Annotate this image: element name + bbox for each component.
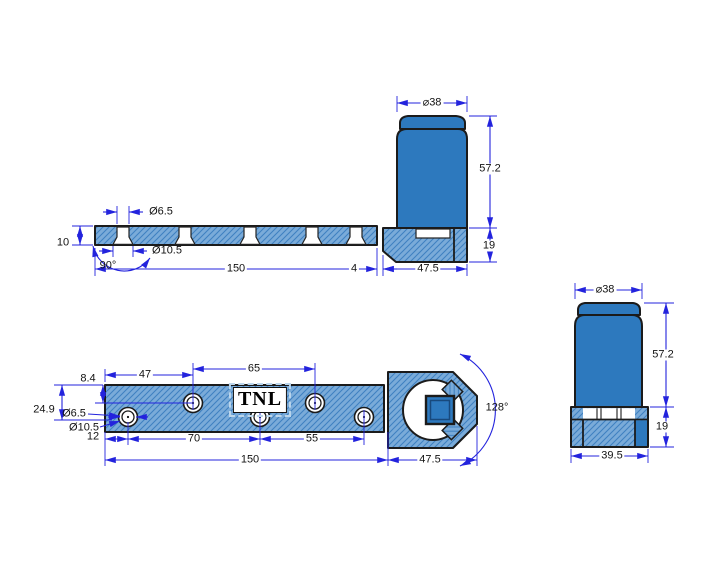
dim-side-150: 150 (225, 264, 247, 275)
dim-side-dia38: ⌀38 (421, 98, 444, 109)
dim-plan-65: 65 (246, 364, 262, 375)
dim-side-19: 19 (481, 241, 497, 252)
plan-view (105, 372, 477, 448)
dim-plan-150: 150 (239, 455, 261, 466)
dim-plan-475: 47.5 (417, 455, 442, 466)
front-knob-cap (578, 303, 640, 315)
dim-side-dia105: Ø10.5 (152, 246, 182, 257)
brand-stamp: TNL (233, 387, 287, 413)
dim-plan-dia65: Ø6.5 (62, 409, 86, 420)
dim-plan-249: 24.9 (33, 405, 54, 416)
dim-front-19: 19 (654, 422, 670, 433)
dim-plan-12: 12 (87, 432, 99, 443)
dim-plan-55: 55 (304, 434, 320, 445)
dim-side-10: 10 (57, 238, 69, 249)
dim-plan-47: 47 (137, 370, 153, 381)
dim-side-4: 4 (349, 264, 359, 275)
front-view (571, 303, 648, 447)
dim-plan-70: 70 (186, 434, 202, 445)
dim-side-475: 47.5 (415, 264, 440, 275)
dim-plan-84: 8.4 (80, 374, 95, 385)
dim-side-572: 57.2 (477, 164, 502, 175)
side-knob-cap (400, 116, 465, 129)
dim-front-572: 57.2 (650, 350, 675, 361)
dim-side-dia65: Ø6.5 (149, 207, 173, 218)
front-knob-body (575, 315, 642, 407)
dim-front-395: 39.5 (599, 451, 624, 462)
dim-side-90deg: 90° (100, 261, 117, 272)
drawing-canvas: ⌀38 57.2 19 47.5 150 4 10 Ø6.5 Ø10.5 90°… (0, 0, 712, 585)
side-view (95, 116, 467, 262)
dim-plan-128deg: 128° (486, 403, 509, 414)
side-knob-body (397, 129, 467, 228)
side-base-slot (416, 229, 450, 238)
dim-front-dia38: ⌀38 (594, 285, 617, 296)
side-bar (95, 226, 377, 245)
